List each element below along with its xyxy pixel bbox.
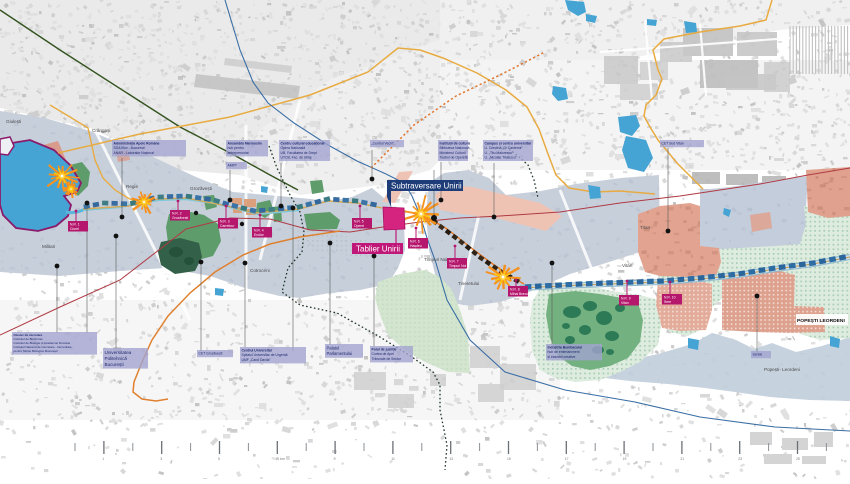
svg-text:Instituții de cultură: Instituții de cultură: [440, 142, 470, 146]
svg-text:Titan: Titan: [640, 225, 650, 230]
svg-text:Centru cultural educațional: Centru cultural educațional: [281, 142, 325, 146]
svg-text:Tribunale de Sector: Tribunale de Sector: [372, 357, 402, 361]
svg-text:Palatul: Palatul: [327, 345, 340, 350]
svg-text:Grozăvești: Grozăvești: [172, 216, 188, 220]
svg-text:CET Grozăvești: CET Grozăvești: [199, 352, 223, 356]
svg-text:CET Sud Vitan: CET Sud Vitan: [662, 142, 684, 146]
svg-text:Ciurel: Ciurel: [70, 227, 79, 231]
svg-text:1: 1: [102, 457, 104, 461]
svg-text:Opera Națională: Opera Națională: [281, 146, 306, 150]
svg-text:U. „Titu Maiorescu”: U. „Titu Maiorescu”: [485, 151, 514, 155]
svg-text:5 km: 5 km: [277, 457, 285, 461]
svg-text:Giulești: Giulești: [6, 119, 21, 124]
svg-text:Hașdeu: Hașdeu: [410, 244, 422, 248]
svg-text:Curtea de Apel: Curtea de Apel: [372, 352, 395, 356]
svg-text:13: 13: [449, 457, 453, 461]
svg-text:Mihai Bravu: Mihai Bravu: [510, 292, 528, 296]
svg-text:Operei: Operei: [354, 224, 364, 228]
svg-text:Campus și centru universitar: Campus și centru universitar: [485, 142, 532, 146]
svg-text:21: 21: [680, 457, 684, 461]
svg-text:Industria Bumbacului: Industria Bumbacului: [548, 346, 583, 350]
svg-text:hub de entertainment: hub de entertainment: [548, 350, 580, 354]
svg-text:Vitan: Vitan: [622, 263, 633, 268]
svg-text:Carrefour: Carrefour: [220, 224, 235, 228]
svg-text:Politehnică: Politehnică: [105, 356, 128, 361]
svg-text:și industrii creative: și industrii creative: [548, 355, 576, 359]
svg-text:Polul de justiție: Polul de justiție: [372, 348, 397, 352]
svg-text:Timpuri Noi: Timpuri Noi: [424, 257, 447, 262]
svg-text:Grozăvești: Grozăvești: [190, 186, 212, 191]
svg-text:U. „Nicolae Titulescu”: U. „Nicolae Titulescu”: [485, 155, 517, 159]
svg-text:Centrul Universitar: Centrul Universitar: [242, 349, 273, 353]
svg-text:ANAR - Laborator Național: ANAR - Laborator Național: [114, 151, 155, 155]
svg-text:11: 11: [391, 457, 395, 461]
svg-text:N.R. 6: N.R. 6: [410, 239, 420, 243]
svg-text:N.R. 8: N.R. 8: [510, 287, 520, 291]
svg-text:Subtraversare Unirii: Subtraversare Unirii: [391, 182, 462, 191]
svg-text:Ansamblu Marmosim: Ansamblu Marmosim: [228, 142, 262, 146]
svg-text:N.R. 10: N.R. 10: [664, 295, 676, 299]
svg-text:15: 15: [507, 457, 511, 461]
svg-text:17: 17: [565, 457, 569, 461]
svg-text:Sere: Sere: [664, 300, 671, 304]
svg-text:Biblioteca Națională: Biblioteca Națională: [440, 146, 470, 150]
svg-text:Serele: Serele: [753, 353, 763, 357]
svg-text:București: București: [105, 362, 124, 367]
svg-text:Cotroceni: Cotroceni: [250, 268, 270, 273]
svg-text:23: 23: [738, 457, 742, 461]
svg-text:Popești- Leordeni: Popești- Leordeni: [764, 367, 800, 372]
svg-text:Crângași: Crângași: [92, 128, 110, 133]
svg-text:pentru Științe Biologice Bucur: pentru Științe Biologice București: [14, 349, 58, 353]
svg-text:Tineretului: Tineretului: [458, 281, 479, 286]
svg-text:9: 9: [334, 457, 336, 461]
svg-text:3: 3: [160, 457, 162, 461]
svg-text:AMPT: AMPT: [228, 164, 237, 168]
svg-text:19: 19: [623, 457, 627, 461]
svg-text:Regie: Regie: [126, 184, 138, 189]
svg-text:Spitalul Universitar de Urgenț: Spitalul Universitar de Urgență: [242, 353, 288, 357]
svg-text:N.R. 4: N.R. 4: [254, 228, 264, 232]
svg-text:SGA Ilfov - București: SGA Ilfov - București: [114, 146, 146, 150]
svg-text:Tablier Unirii: Tablier Unirii: [356, 245, 400, 254]
svg-text:„Centrul Vechi”: „Centrul Vechi”: [372, 142, 394, 146]
svg-text:UMF „Carol Davila”: UMF „Carol Davila”: [242, 358, 271, 362]
svg-text:Timpuri Noi: Timpuri Noi: [449, 264, 466, 268]
svg-text:N.R. 7: N.R. 7: [449, 259, 459, 263]
svg-text:Teatrul de Operetă: Teatrul de Operetă: [440, 155, 468, 159]
svg-text:Administrația Apele Române: Administrația Apele Române: [114, 142, 160, 146]
svg-text:U. Creștină „D. Cantemir”: U. Creștină „D. Cantemir”: [485, 146, 523, 150]
svg-text:Militari: Militari: [42, 244, 55, 249]
svg-text:hub pentru: hub pentru: [228, 146, 244, 150]
svg-text:Ministerul Culturii: Ministerul Culturii: [440, 151, 466, 155]
svg-text:UTCB, Fac. de Utilaj: UTCB, Fac. de Utilaj: [281, 155, 312, 159]
svg-text:25: 25: [796, 457, 800, 461]
svg-text:Vitan: Vitan: [621, 301, 629, 305]
svg-text:N.R. 1: N.R. 1: [70, 222, 80, 226]
svg-text:Parlamentului: Parlamentului: [327, 351, 353, 356]
svg-text:N.R. 3: N.R. 3: [220, 219, 230, 223]
svg-text:N.R. 2: N.R. 2: [172, 211, 182, 215]
svg-text:POPEȘTI LEORDENI: POPEȘTI LEORDENI: [797, 318, 845, 324]
svg-text:antreprenoriat: antreprenoriat: [228, 151, 249, 155]
svg-text:5: 5: [218, 457, 220, 461]
svg-text:N.R. 9: N.R. 9: [621, 296, 631, 300]
svg-text:N.R. 5: N.R. 5: [354, 219, 364, 223]
svg-text:Universitatea: Universitatea: [105, 350, 132, 355]
svg-text:UB, Facultatea de Drept: UB, Facultatea de Drept: [281, 151, 317, 155]
svg-text:Eroilor: Eroilor: [254, 233, 265, 237]
